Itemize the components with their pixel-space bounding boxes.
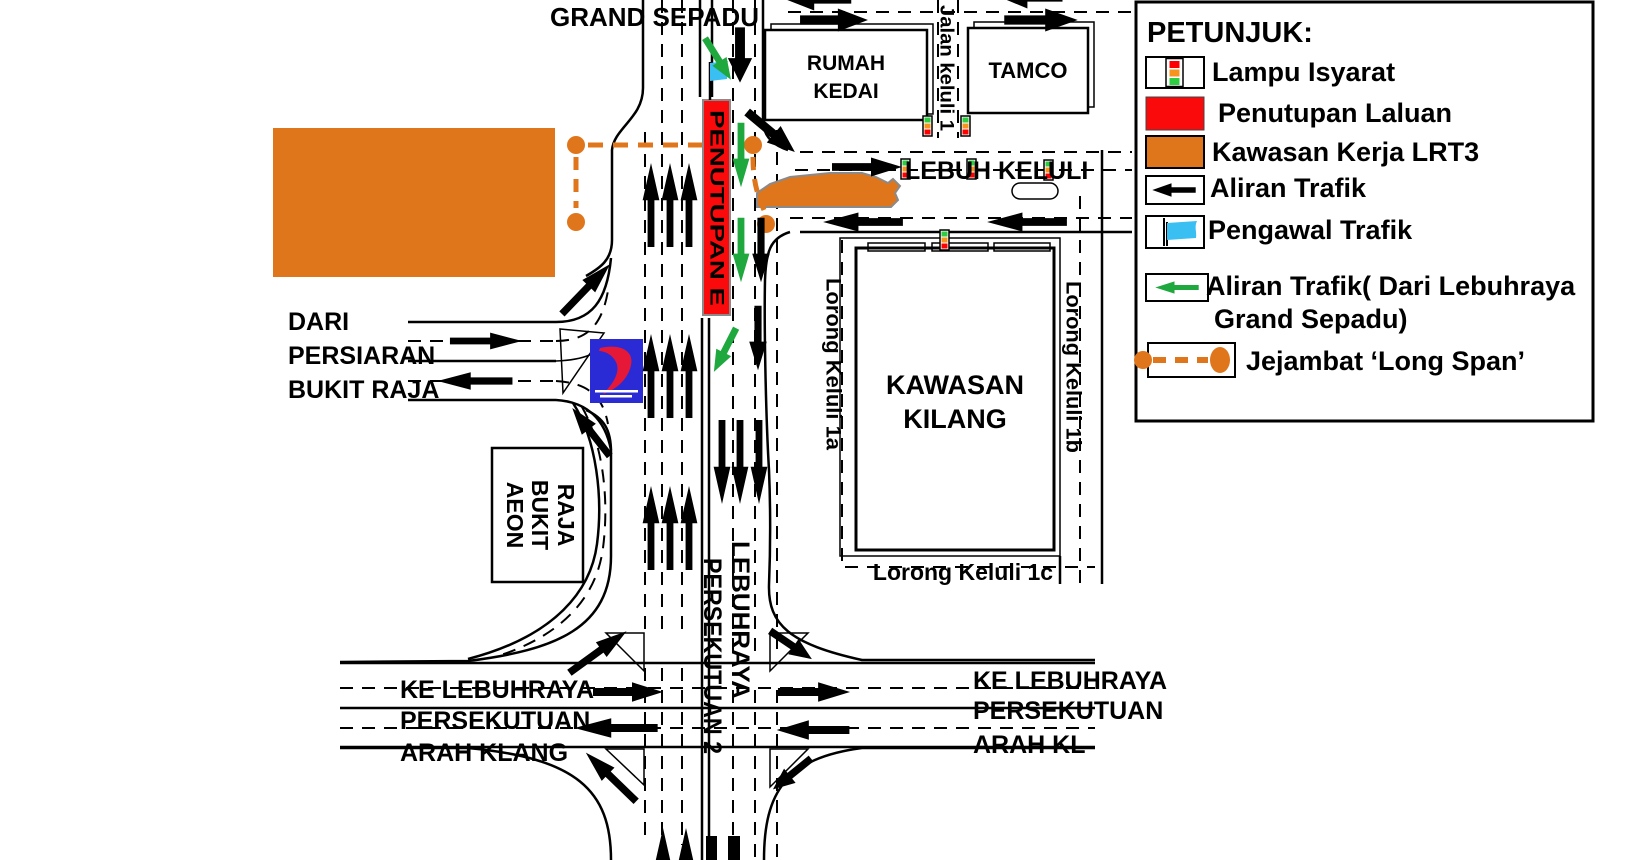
traffic-light-icon bbox=[961, 116, 970, 136]
label-kawasan-kilang: KILANG bbox=[903, 404, 1007, 434]
closure-label: PENUTUPAN E bbox=[706, 110, 727, 306]
legend-item-kawasan-kerja: Kawasan Kerja LRT3 bbox=[1146, 136, 1479, 168]
label-grand-sepadu: GRAND SEPADU bbox=[550, 2, 759, 32]
legend-item-penutupan-laluan: Penutupan Laluan bbox=[1146, 97, 1452, 130]
legend-title: PETUNJUK: bbox=[1147, 17, 1313, 49]
label-dari: BUKIT RAJA bbox=[288, 376, 439, 404]
flow-arrow-tail bbox=[728, 836, 740, 860]
label-aeon: AEON bbox=[502, 482, 528, 548]
legend-item-lampu-isyarat: Lampu Isyarat bbox=[1146, 57, 1395, 88]
label-lorong-keluli-1a: Lorong Keluli 1a bbox=[822, 278, 845, 450]
traffic-plan-map: PENUTUPAN E bbox=[0, 0, 1630, 860]
label-dari: PERSIARAN bbox=[288, 342, 435, 370]
label-jalan-keluli-1: Jalan keluli 1 bbox=[936, 5, 957, 131]
legend-item-jejambat: Jejambat ‘Long Span’ bbox=[1134, 343, 1525, 377]
label-aeon: BUKIT bbox=[527, 480, 553, 550]
label-rumah-kedai: RUMAH bbox=[807, 52, 885, 75]
label-ke-klang: ARAH KLANG bbox=[400, 739, 568, 767]
flow-arrow-tail bbox=[706, 836, 717, 860]
label-ke-kl: KE LEBUHRAYA bbox=[973, 667, 1167, 695]
legend: PETUNJUK: Lampu Isyarat Penutupan Laluan… bbox=[1134, 2, 1593, 421]
work-area-rect bbox=[273, 128, 555, 277]
label-lebuhraya: LEBUHRAYA bbox=[726, 541, 754, 699]
legend-label: Penutupan Laluan bbox=[1218, 98, 1452, 128]
legend-label: Kawasan Kerja LRT3 bbox=[1212, 137, 1479, 167]
junction-logo bbox=[590, 339, 643, 403]
label-rumah-kedai: KEDAI bbox=[813, 80, 878, 103]
label-ke-klang: KE LEBUHRAYA bbox=[400, 676, 594, 704]
rumah-kedai-building bbox=[765, 30, 927, 120]
label-lebuh-keluli: LEBUH KELULI bbox=[905, 157, 1088, 185]
legend-label: Lampu Isyarat bbox=[1212, 57, 1395, 87]
closure-swatch bbox=[1146, 97, 1204, 130]
penutupan-e-closure: PENUTUPAN E bbox=[703, 100, 730, 315]
legend-item-aliran-trafik: Aliran Trafik bbox=[1146, 173, 1367, 204]
label-ke-klang: PERSEKUTUAN bbox=[400, 707, 590, 735]
legend-item-pengawal-trafik: Pengawal Trafik bbox=[1146, 215, 1413, 248]
label-dari: DARI bbox=[288, 308, 349, 336]
label-persekutuan-2: PERSEKUTUAN 2 bbox=[698, 558, 726, 754]
flag-icon bbox=[1167, 221, 1197, 240]
label-ke-kl: ARAH KL bbox=[973, 731, 1086, 759]
label-kawasan-kilang: KAWASAN bbox=[886, 370, 1024, 400]
legend-label: Aliran Trafik bbox=[1210, 173, 1367, 203]
label-lorong-keluli-1c: Lorong Keluli 1c bbox=[873, 559, 1053, 585]
label-ke-kl: PERSEKUTUAN bbox=[973, 697, 1163, 725]
legend-label: Aliran Trafik( Dari Lebuhraya bbox=[1206, 271, 1576, 301]
label-aeon: RAJA bbox=[553, 484, 579, 547]
label-lorong-keluli-1b: Lorong Keluli 1b bbox=[1062, 281, 1085, 453]
traffic-light-icon bbox=[923, 116, 932, 136]
legend-label: Pengawal Trafik bbox=[1208, 215, 1413, 245]
work-area-swatch bbox=[1146, 136, 1204, 168]
label-tamco: TAMCO bbox=[988, 58, 1067, 83]
legend-label: Grand Sepadu) bbox=[1214, 304, 1408, 334]
traffic-light-icon bbox=[940, 230, 949, 250]
legend-label: Jejambat ‘Long Span’ bbox=[1246, 346, 1525, 376]
